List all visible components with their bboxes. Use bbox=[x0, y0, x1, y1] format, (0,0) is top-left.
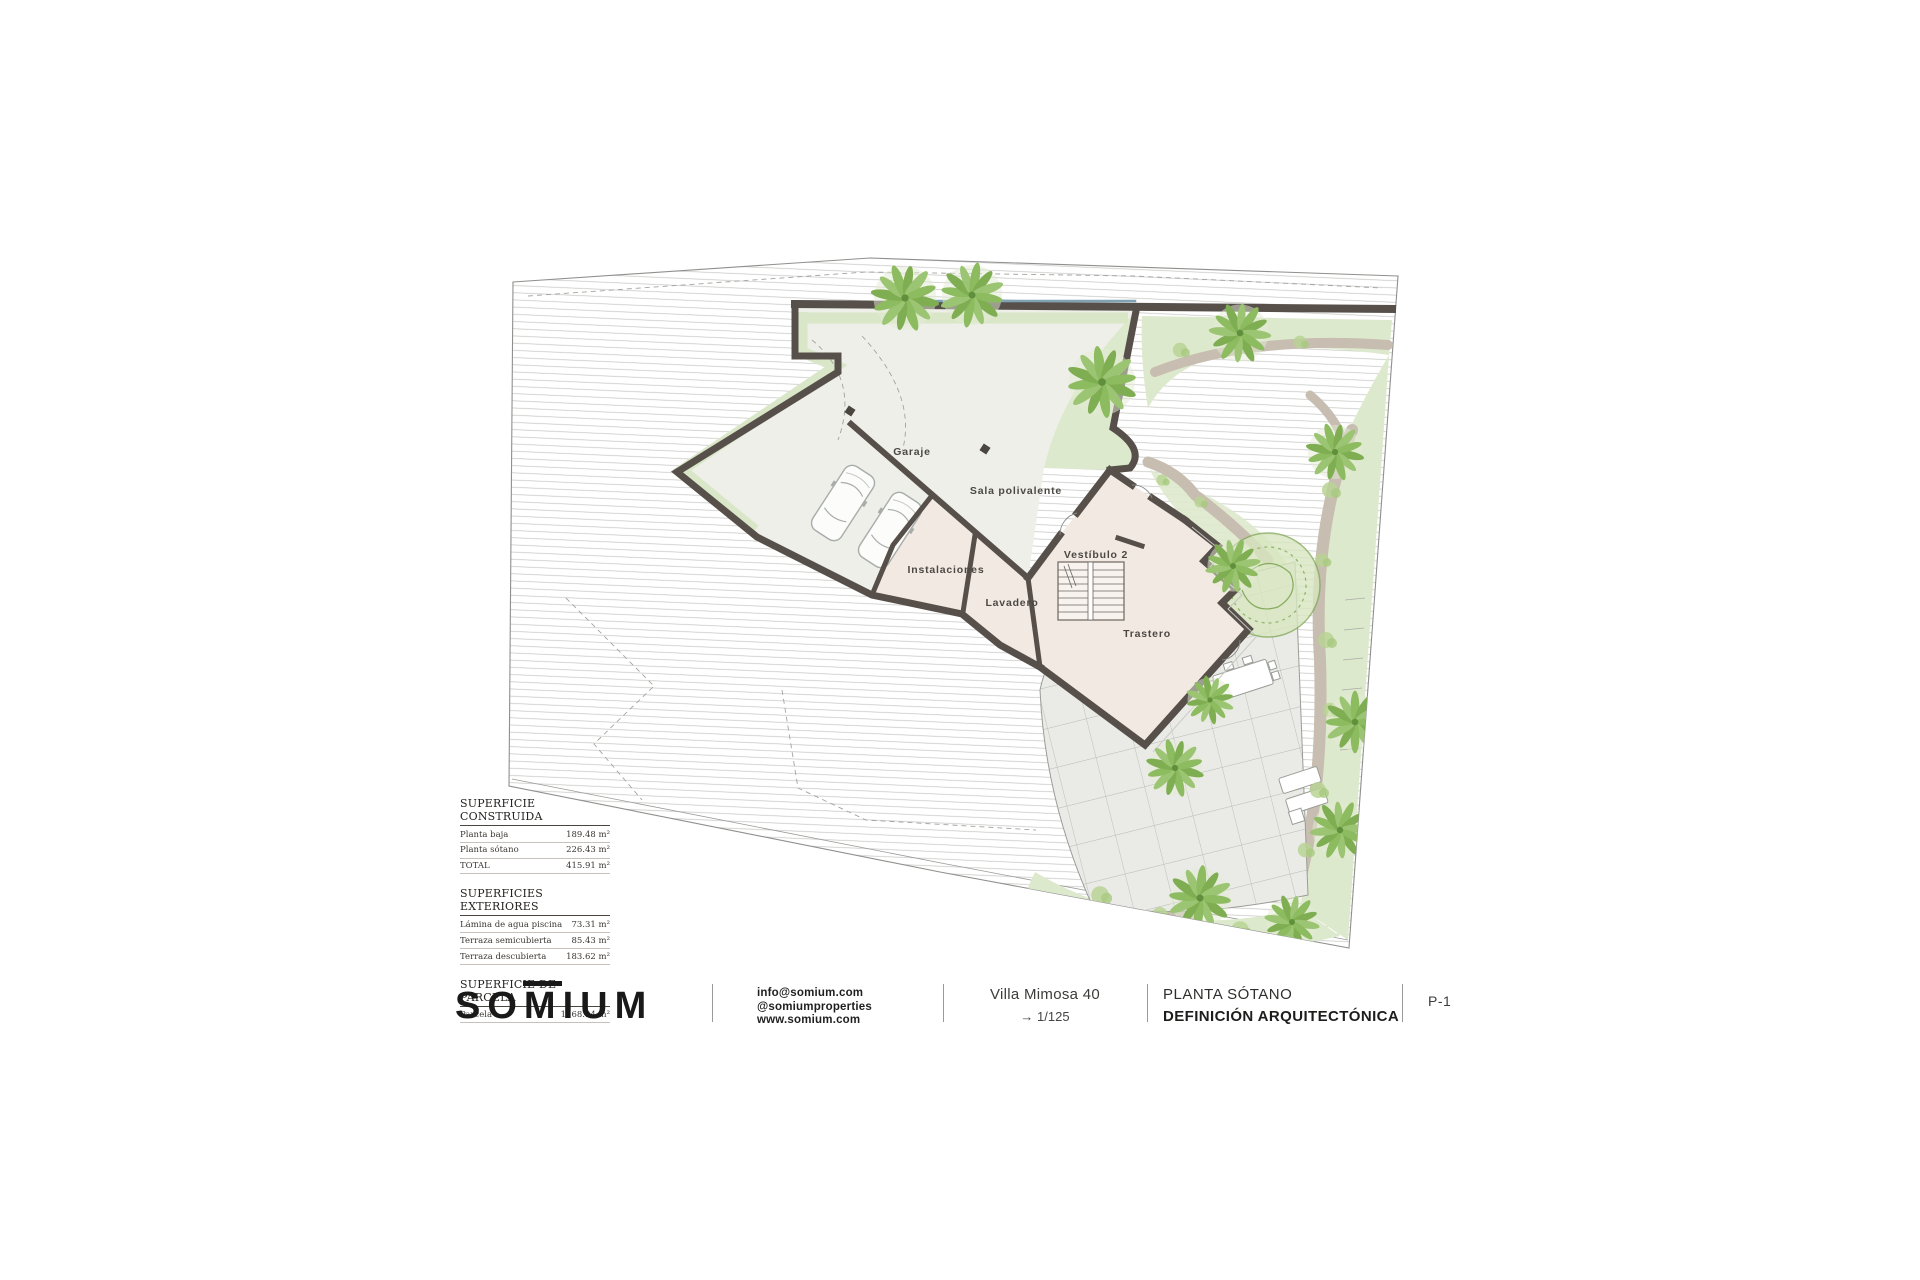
table-superficies-exteriores: SUPERFICIES EXTERIORES Lámina de agua pi… bbox=[460, 887, 610, 964]
scale-value: 1/125 bbox=[1037, 1009, 1070, 1024]
logo-text: SO bbox=[455, 985, 524, 1027]
plan-title: PLANTA SÓTANO bbox=[1163, 986, 1399, 1003]
staircase bbox=[1058, 562, 1124, 620]
sheet-number: P-1 bbox=[1428, 993, 1451, 1009]
plan-subtitle: DEFINICIÓN ARQUITECTÓNICA bbox=[1163, 1008, 1399, 1025]
plan-title-block: PLANTA SÓTANO DEFINICIÓN ARQUITECTÓNICA bbox=[1163, 986, 1399, 1025]
contact-website: www.somium.com bbox=[757, 1014, 872, 1028]
room-label-trastero: Trastero bbox=[1123, 628, 1171, 640]
project-name: Villa Mimosa 40 bbox=[955, 986, 1135, 1003]
table-row: Terraza semicubierta 85.43 m² bbox=[460, 933, 610, 949]
contact-social: @somiumproperties bbox=[757, 1001, 872, 1015]
row-value: 183.62 m² bbox=[566, 952, 610, 962]
logo-text: IUM bbox=[563, 985, 654, 1027]
titleblock-divider bbox=[712, 984, 713, 1022]
room-label-sala: Sala polivalente bbox=[970, 485, 1062, 497]
room-label-vestibulo: Vestíbulo 2 bbox=[1064, 549, 1128, 561]
drawing-scale: → 1/125 bbox=[955, 1009, 1135, 1024]
table-row: Planta baja 189.48 m² bbox=[460, 827, 610, 843]
row-label: TOTAL bbox=[460, 861, 490, 871]
somium-logo: SOMIUM bbox=[455, 985, 653, 1028]
row-label: Terraza semicubierta bbox=[460, 936, 552, 946]
row-label: Planta baja bbox=[460, 830, 508, 840]
row-value: 73.31 m² bbox=[571, 920, 610, 930]
table-row: Planta sótano 226.43 m² bbox=[460, 843, 610, 859]
drawing-sheet: Garaje Sala polivalente Instalaciones La… bbox=[0, 0, 1920, 1280]
row-label: Lámina de agua piscina bbox=[460, 920, 562, 930]
site-plan-drawing: Garaje Sala polivalente Instalaciones La… bbox=[0, 0, 1920, 1280]
row-value: 226.43 m² bbox=[566, 845, 610, 855]
row-label: Terraza descubierta bbox=[460, 952, 546, 962]
titleblock-divider bbox=[1402, 984, 1403, 1022]
room-label-lavadero: Lavadero bbox=[985, 597, 1038, 609]
table-row: Lámina de agua piscina 73.31 m² bbox=[460, 917, 610, 933]
titleblock-divider bbox=[943, 984, 944, 1022]
table-row: TOTAL 415.91 m² bbox=[460, 859, 610, 875]
project-block: Villa Mimosa 40 → 1/125 bbox=[955, 986, 1135, 1024]
table-title: SUPERFICIE CONSTRUIDA bbox=[460, 797, 610, 826]
room-label-instalaciones: Instalaciones bbox=[908, 564, 985, 576]
row-value: 189.48 m² bbox=[566, 830, 610, 840]
scale-arrow-icon: → bbox=[1020, 1009, 1033, 1024]
row-value: 415.91 m² bbox=[566, 861, 610, 871]
table-row: Terraza descubierta 183.62 m² bbox=[460, 949, 610, 965]
row-label: Planta sótano bbox=[460, 845, 519, 855]
titleblock-divider bbox=[1147, 984, 1148, 1022]
table-superficie-construida: SUPERFICIE CONSTRUIDA Planta baja 189.48… bbox=[460, 797, 610, 874]
table-title: SUPERFICIES EXTERIORES bbox=[460, 887, 610, 916]
contact-email: info@somium.com bbox=[757, 987, 872, 1001]
logo-m-macron: M bbox=[524, 985, 563, 1028]
room-label-garaje: Garaje bbox=[893, 446, 931, 458]
contact-info: info@somium.com @somiumproperties www.so… bbox=[757, 987, 872, 1028]
row-value: 85.43 m² bbox=[571, 936, 610, 946]
